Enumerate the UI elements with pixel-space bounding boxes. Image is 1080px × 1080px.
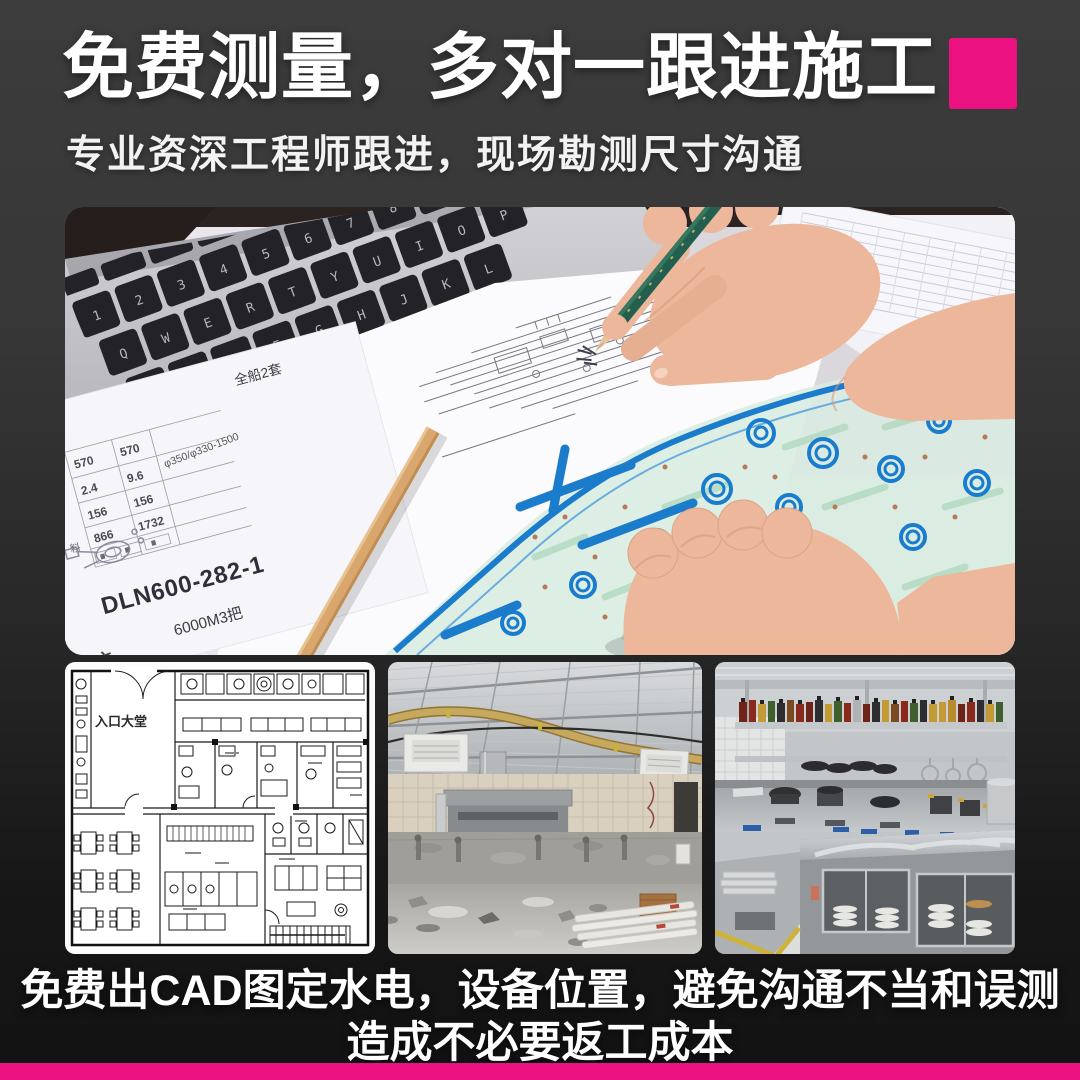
construction-site-illustration: [388, 662, 702, 954]
cad-floorplan-illustration: 入口大堂: [65, 662, 375, 954]
hero-photo-illustration: 1234567890QWERTYUIOPASDFGHJKLZXCVBNM OF …: [65, 207, 1015, 655]
ceiling-ac-unit: [404, 734, 468, 772]
plate-display-cabinet: [800, 830, 1015, 954]
floorplan-room-label: 入口大堂: [95, 714, 147, 729]
bottom-accent-bar: [0, 1063, 1080, 1080]
electrical-panel: [676, 844, 690, 864]
pot-shelf: [735, 756, 1007, 762]
promo-banner: 免费测量，多对一跟进施工 专业资深工程师跟进，现场勘测尺寸沟通: [0, 0, 1080, 1080]
page-subtitle: 专业资深工程师跟进，现场勘测尺寸沟通: [66, 124, 804, 180]
counter-structure: [436, 790, 572, 836]
gallery-item-construction-site: [388, 662, 702, 954]
cooking-line: [715, 778, 1015, 837]
caption-line-2: 造成不必要返工成本: [0, 1008, 1080, 1070]
gallery-item-cad-floorplan: 入口大堂: [65, 662, 375, 954]
finished-kitchen-illustration: [715, 662, 1015, 954]
accent-square-decoration: [949, 38, 1017, 109]
gallery-item-finished-kitchen: [715, 662, 1015, 954]
hero-photo-engineer-blueprint: 1234567890QWERTYUIOPASDFGHJKLZXCVBNM OF …: [65, 207, 1015, 655]
page-title: 免费测量，多对一跟进施工: [62, 28, 942, 108]
